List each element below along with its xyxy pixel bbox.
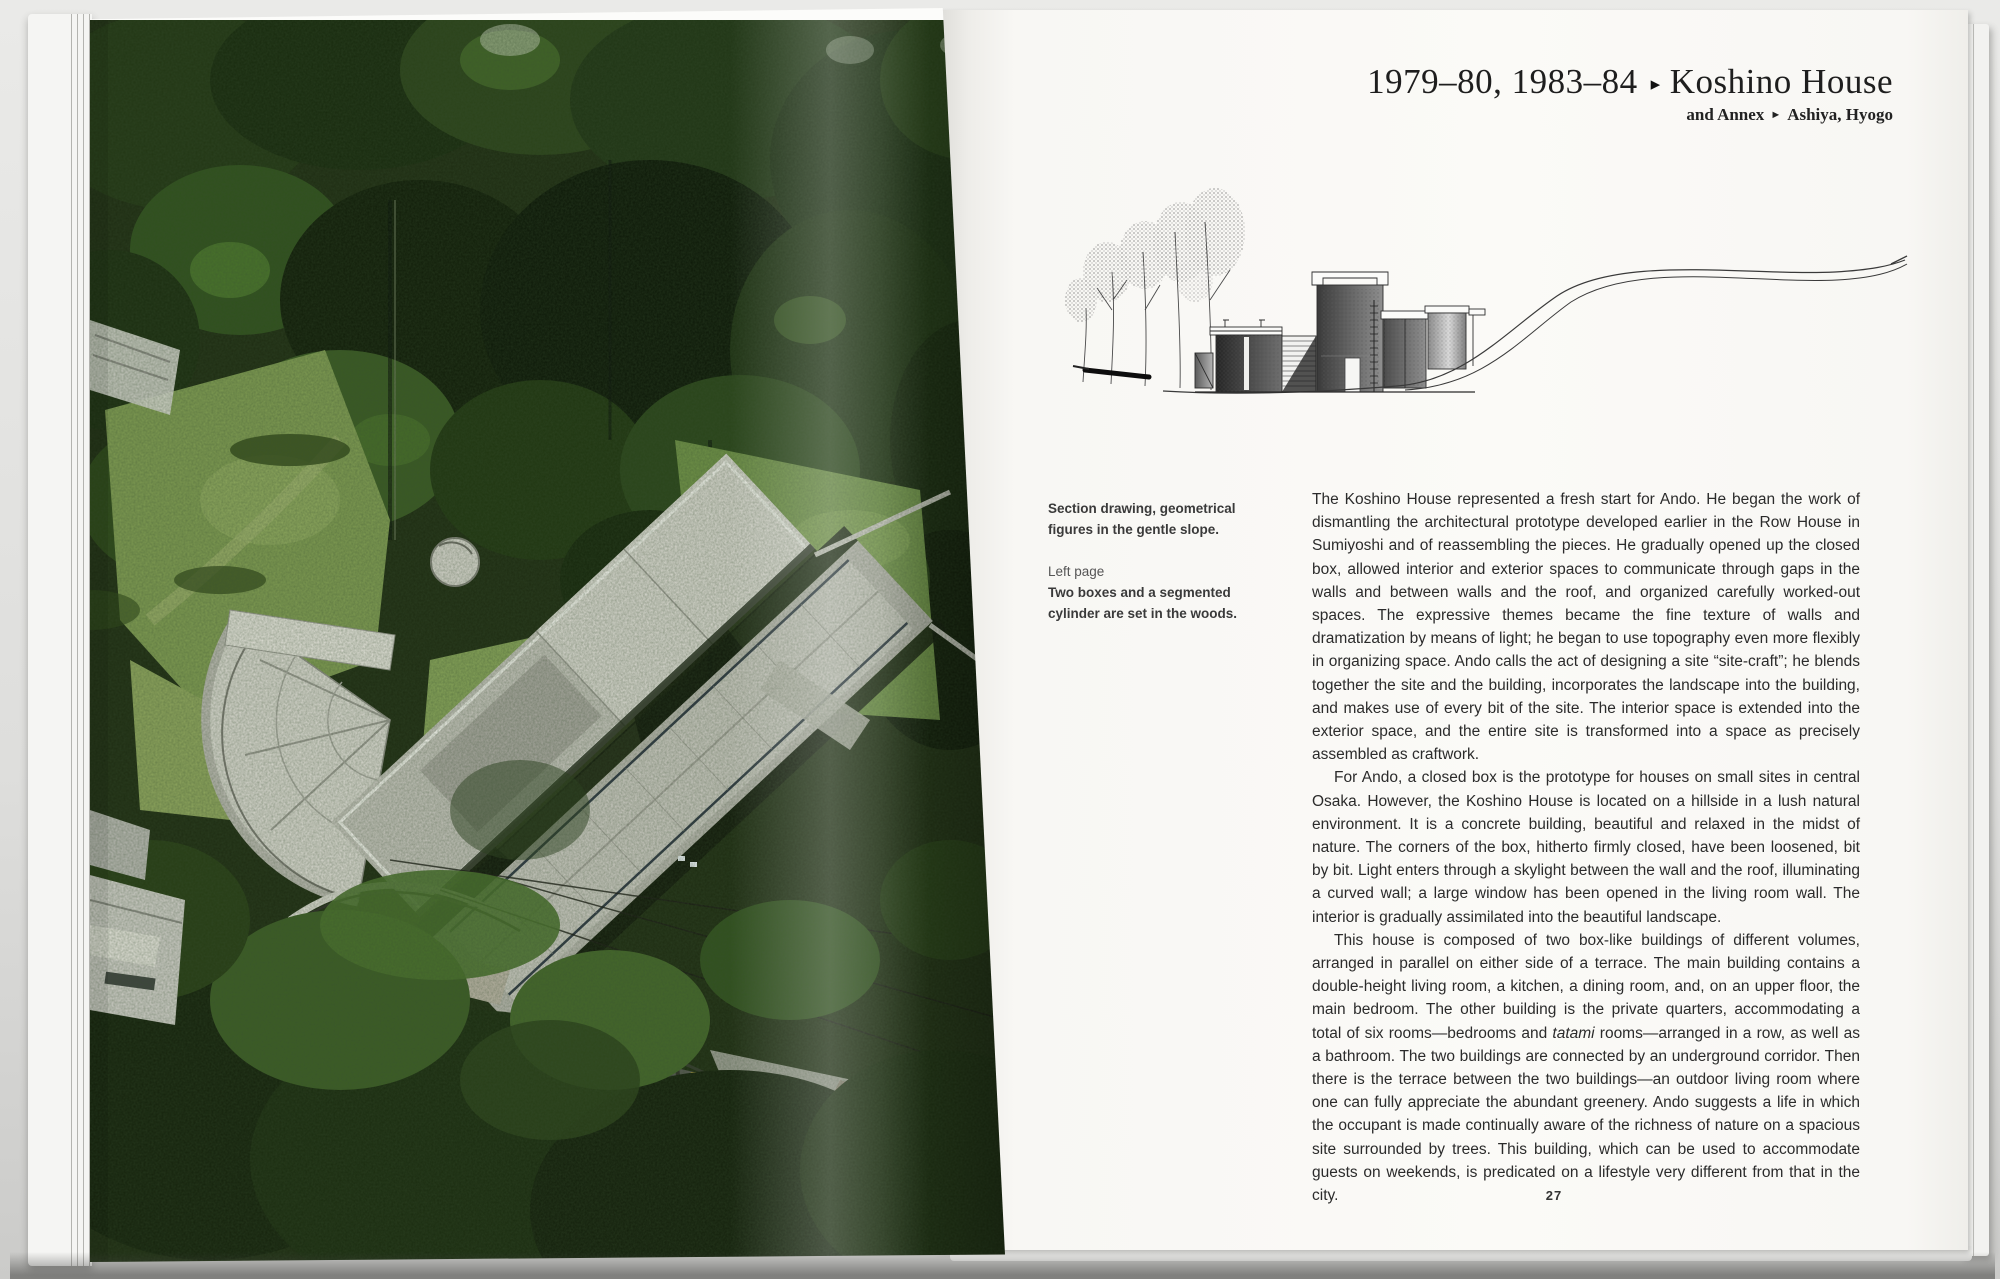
left-page: [90, 8, 1005, 1262]
title-years: 1979–80, 1983–84: [1367, 62, 1638, 101]
left-page-stack-edge: [28, 14, 92, 1266]
title-name: Koshino House: [1670, 62, 1893, 101]
caption-column: Section drawing, geometrical figures in …: [1048, 498, 1253, 624]
body-paragraph: This house is composed of two box-like b…: [1312, 929, 1860, 1207]
caption-left-page-label: Left page: [1048, 561, 1253, 582]
book-spread: { "page_right": { "title": { "years": "1…: [0, 0, 2000, 1279]
sketch-buildings: [1195, 272, 1485, 392]
page-edge-stripes: [66, 14, 92, 1266]
subtitle-prefix: and Annex: [1686, 105, 1764, 124]
book-bottom-shadow: [10, 1252, 1995, 1279]
page-subtitle: and Annex►Ashiya, Hyogo: [1686, 105, 1893, 125]
article: The Koshino House represented a fresh st…: [1312, 488, 1860, 1207]
aerial-photo: [90, 20, 1005, 1262]
title-arrow-icon: ▸: [1651, 74, 1661, 95]
caption-section-drawing: Section drawing, geometrical figures in …: [1048, 498, 1253, 540]
body-paragraph: The Koshino House represented a fresh st…: [1312, 488, 1860, 766]
body-paragraph: For Ando, a closed box is the prototype …: [1312, 766, 1860, 928]
page-number: 27: [1494, 1188, 1614, 1203]
subtitle-location: Ashiya, Hyogo: [1787, 105, 1893, 124]
right-page: 1979–80, 1983–84▸Koshino House and Annex…: [935, 10, 1968, 1250]
subtitle-arrow-icon: ►: [1770, 109, 1781, 121]
page-title: 1979–80, 1983–84▸Koshino House: [1367, 62, 1893, 102]
caption-left-page: Two boxes and a segmented cylinder are s…: [1048, 582, 1253, 624]
section-drawing: [1045, 160, 1910, 394]
